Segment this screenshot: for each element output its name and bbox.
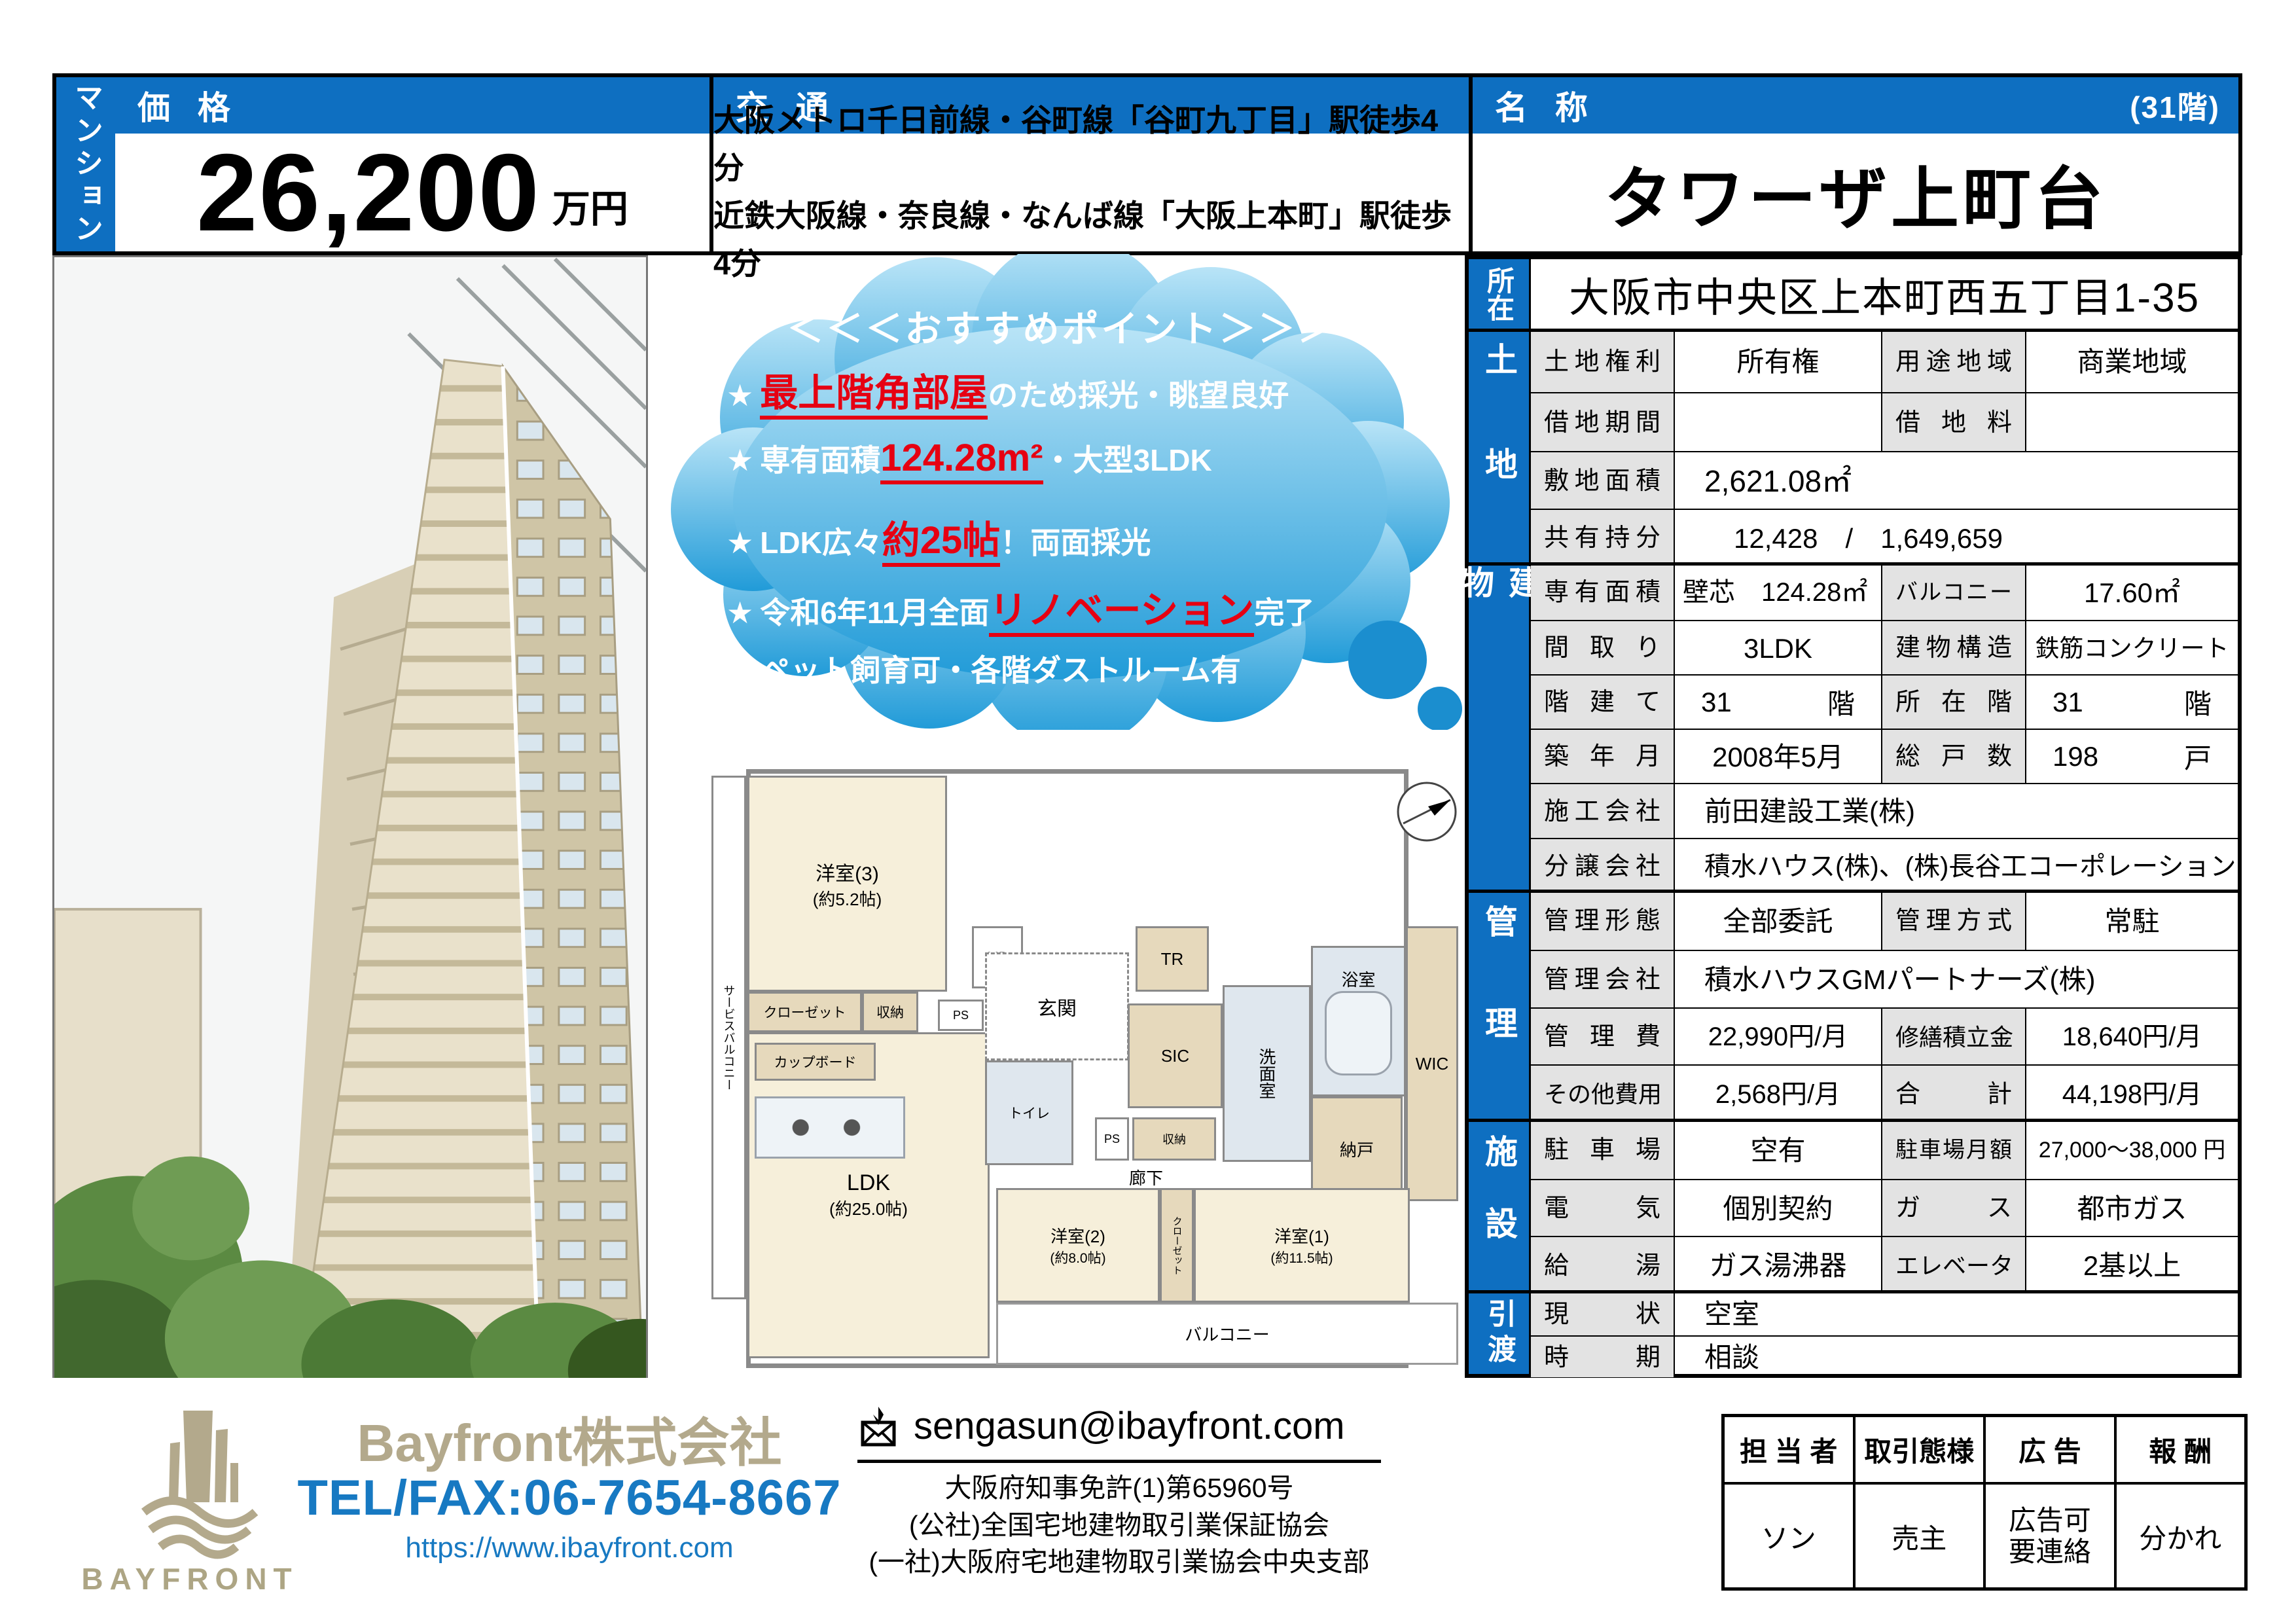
table-row: 間取り 3LDK 建物構造 鉄筋コンクリート	[1531, 620, 2238, 674]
recommend-point-1: ★最上階角部屋のため採光・眺望良好	[726, 362, 1401, 417]
building-tab: 建物	[1469, 566, 1531, 890]
table-row: 施工会社 前田建設工業(株)	[1531, 783, 2238, 838]
row-value: 198戸	[2026, 730, 2238, 783]
row-label: 間取り	[1531, 621, 1675, 674]
property-info-table: 所在 大阪市中央区上本町西五丁目1-35 土地 土地権利 所有権 用途地域 商業…	[1465, 255, 2242, 1378]
bathroom: 浴室	[1311, 946, 1406, 1096]
bayfront-logo-icon	[85, 1404, 301, 1561]
toilet: トイレ	[985, 1060, 1073, 1165]
recommend-point-4: ★令和6年11月全面リノベーション完了	[726, 579, 1401, 634]
table-row: その他費用 2,568円/月 合計 44,198円/月	[1531, 1064, 2238, 1122]
row-label: 電気	[1531, 1180, 1675, 1236]
row-value: 12,428 / 1,649,659	[1675, 510, 2238, 566]
table-row: 分譲会社 積水ハウス(株)、(株)長谷工コーポレーション	[1531, 838, 2238, 893]
recommend-title: ＜＜＜おすすめポイント＞＞＞	[655, 300, 1469, 353]
section-facility: 施設 駐車場 空有 駐車場月額 27,000～38,000 円 電気 個別契約 …	[1469, 1119, 2238, 1290]
section-location: 所在 大阪市中央区上本町西五丁目1-35	[1469, 259, 2238, 329]
row-label: 土地権利	[1531, 332, 1675, 392]
land-tab: 土地	[1469, 332, 1531, 562]
shoes-in-closet: SIC	[1128, 1003, 1223, 1108]
room1: 洋室(1) (約11.5帖)	[1194, 1188, 1410, 1303]
storage-2: 収納	[1132, 1117, 1216, 1161]
recommend-point-5: ★ペット飼育可・各階ダストルーム有	[726, 647, 1401, 690]
name-cell: タワーザ上町台	[1469, 134, 2238, 251]
star-icon: ★	[726, 653, 753, 687]
row-value: 相談	[1675, 1337, 2238, 1377]
name-header: 名 称 (31階)	[1469, 77, 2238, 134]
row-value: 壁芯 124.28㎡	[1675, 566, 1882, 620]
row-label: 施工会社	[1531, 784, 1675, 838]
row-label: 共有持分	[1531, 510, 1675, 566]
row-label: 用途地域	[1882, 332, 2026, 392]
row-label: 借地期間	[1531, 393, 1675, 451]
row-value: 商業地域	[2026, 332, 2238, 392]
license-line-1: 大阪府知事免許(1)第65960号	[825, 1470, 1414, 1507]
price-unit: 万円	[552, 178, 628, 233]
recommend-point-2: ★専有面積124.28m²・大型3LDK	[726, 436, 1401, 480]
row-label: ガス	[1882, 1180, 2026, 1236]
row-label: その他費用	[1531, 1066, 1675, 1122]
pipe-space: PS	[938, 1000, 984, 1031]
section-handover: 引渡 現状 空室 時期 相談	[1469, 1290, 2238, 1374]
access-cell: 大阪メトロ千日前線・谷町線「谷町九丁目」駅徒歩4分 近鉄大阪線・奈良線・なんば線…	[709, 134, 1469, 251]
agent-header-cell: 広 告	[1983, 1417, 2114, 1482]
balcony: バルコニー	[996, 1303, 1458, 1365]
row-value: 27,000～38,000 円	[2026, 1122, 2238, 1179]
section-management: 管理 管理形態 全部委託 管理方式 常駐 管理会社 積水ハウスGMパートナーズ(…	[1469, 890, 2238, 1119]
pipe-space-2: PS	[1095, 1117, 1129, 1161]
price-value: 26,200	[196, 130, 541, 256]
storage-room: 納戸	[1311, 1096, 1403, 1201]
agent-advertising: 広告可 要連絡	[1983, 1485, 2114, 1588]
row-value: 31階	[2026, 676, 2238, 729]
mail-icon	[857, 1405, 899, 1447]
row-value: 2,568円/月	[1675, 1066, 1882, 1122]
agent-header-cell: 報 酬	[2114, 1417, 2245, 1482]
agent-fee: 分かれ	[2114, 1485, 2245, 1588]
table-row: 現状 空室	[1531, 1293, 2238, 1335]
row-value: 44,198円/月	[2026, 1066, 2238, 1122]
cupboard: カップボード	[755, 1043, 876, 1081]
row-value: 2008年5月	[1675, 730, 1882, 783]
row-value: 2,621.08㎡	[1675, 452, 2238, 509]
row-value: 鉄筋コンクリート	[2026, 621, 2238, 674]
storage: 収納	[862, 992, 918, 1032]
row-value: 常駐	[2026, 893, 2238, 950]
washroom: 洗面室	[1223, 985, 1311, 1162]
price-cell: 26,200 万円	[115, 134, 709, 251]
section-land: 土地 土地権利 所有権 用途地域 商業地域 借地期間 借地料 敷地面積 2,62…	[1469, 329, 2238, 562]
row-label: エレベータ	[1882, 1237, 2026, 1293]
row-value: 個別契約	[1675, 1180, 1882, 1236]
row-label: 合計	[1882, 1066, 2026, 1122]
footer: BAYFRONT Bayfront株式会社 TEL/FAX:06-7654-86…	[0, 1378, 2296, 1624]
email-address: sengasun@ibayfront.com	[914, 1404, 1345, 1448]
walk-in-closet: WIC	[1406, 926, 1458, 1201]
access-line-1: 大阪メトロ千日前線・谷町線「谷町九丁目」駅徒歩4分	[713, 97, 1469, 192]
row-label: 修繕積立金	[1882, 1009, 2026, 1064]
company-url: https://www.ibayfront.com	[288, 1532, 851, 1564]
row-value: 空有	[1675, 1122, 1882, 1179]
agent-staff: ソン	[1725, 1485, 1853, 1588]
facility-tab: 施設	[1469, 1122, 1531, 1290]
floor-note: (31階)	[2130, 84, 2220, 127]
table-row: 管理形態 全部委託 管理方式 常駐	[1531, 893, 2238, 950]
price-header: 価 格	[115, 77, 709, 134]
recommend-point-3: ★LDK広々約25帖！両面採光	[726, 509, 1401, 564]
location-tab: 所在	[1469, 259, 1531, 329]
row-label: 管理方式	[1882, 893, 2026, 950]
ldk: LDK (約25.0帖)	[747, 1032, 990, 1358]
table-row: 管理会社 積水ハウスGMパートナーズ(株)	[1531, 950, 2238, 1007]
recommend-cloud: ＜＜＜おすすめポイント＞＞＞ ★最上階角部屋のため採光・眺望良好 ★専有面積12…	[655, 254, 1469, 732]
license-line-3: (一社)大阪府宅地建物取引業協会中央支部	[825, 1543, 1414, 1581]
row-value: ガス湯沸器	[1675, 1237, 1882, 1293]
row-label: 管理形態	[1531, 893, 1675, 950]
row-label: 現状	[1531, 1293, 1675, 1335]
row-label: 所在階	[1882, 676, 2026, 729]
compass-icon	[1394, 779, 1460, 844]
real-estate-flyer: マンション 価 格 26,200 万円 交 通 大阪メトロ千日前線・谷町線「谷町…	[0, 0, 2296, 1624]
row-value: 積水ハウス(株)、(株)長谷工コーポレーション	[1675, 839, 2238, 893]
section-building: 建物 専有面積 壁芯 124.28㎡ バルコニー 17.60㎡ 間取り 3LDK…	[1469, 562, 2238, 890]
row-value	[1675, 393, 1882, 451]
star-icon: ★	[726, 596, 753, 630]
row-value: 3LDK	[1675, 621, 1882, 674]
table-row: 給湯 ガス湯沸器 エレベータ 2基以上	[1531, 1236, 2238, 1293]
agent-header-cell: 担 当 者	[1725, 1417, 1853, 1482]
kitchen-counter	[755, 1096, 905, 1159]
table-row: 築年月 2008年5月 総戸数 198戸	[1531, 729, 2238, 783]
company-name: Bayfront株式会社	[288, 1401, 851, 1477]
row-label: 築年月	[1531, 730, 1675, 783]
tel-fax: TEL/FAX:06-7654-8667	[288, 1470, 851, 1526]
row-label: 管理会社	[1531, 951, 1675, 1007]
row-value	[2026, 393, 2238, 451]
row-label: 建物構造	[1882, 621, 2026, 674]
row-label: 専有面積	[1531, 566, 1675, 620]
row-label: 階建て	[1531, 676, 1675, 729]
agent-table: 担 当 者 取引態様 広 告 報 酬 ソン 売主 広告可 要連絡 分かれ	[1721, 1414, 2248, 1591]
row-label: 駐車場月額	[1882, 1122, 2026, 1179]
row-label: 管理費	[1531, 1009, 1675, 1064]
row-value: 全部委託	[1675, 893, 1882, 950]
bathtub-icon	[1325, 991, 1392, 1075]
license-line-2: (公社)全国宅地建物取引業保証協会	[825, 1507, 1414, 1544]
room3: 洋室(3) (約5.2帖)	[747, 776, 947, 992]
closet-strip: クローゼット	[1160, 1188, 1194, 1303]
table-row: 電気 個別契約 ガス 都市ガス	[1531, 1179, 2238, 1236]
row-value: 前田建設工業(株)	[1675, 784, 2238, 838]
license-block: 大阪府知事免許(1)第65960号 (公社)全国宅地建物取引業保証協会 (一社)…	[825, 1470, 1414, 1581]
table-row: 土地権利 所有権 用途地域 商業地域	[1531, 332, 2238, 392]
table-row: 敷地面積 2,621.08㎡	[1531, 451, 2238, 509]
table-row: 階建て 31階 所在階 31階	[1531, 674, 2238, 729]
row-label: 給湯	[1531, 1237, 1675, 1293]
row-label: 時期	[1531, 1337, 1675, 1377]
property-type-tab: マンション	[56, 77, 115, 251]
building-name: タワーザ上町台	[1604, 143, 2107, 242]
row-label: 借地料	[1882, 393, 2026, 451]
row-label: 総戸数	[1882, 730, 2026, 783]
row-value: 都市ガス	[2026, 1180, 2238, 1236]
row-value: 空室	[1675, 1293, 2238, 1335]
name-header-label: 名 称	[1495, 82, 1597, 129]
closet: クローゼット	[747, 992, 862, 1032]
row-value: 22,990円/月	[1675, 1009, 1882, 1064]
row-value: 17.60㎡	[2026, 566, 2238, 620]
floor-plan: サービスバルコニー 洋室(3) (約5.2帖) LDK (約25.0帖) クロー…	[710, 730, 1462, 1381]
row-value: 18,640円/月	[2026, 1009, 2238, 1064]
agent-header-cell: 取引態様	[1853, 1417, 1984, 1482]
email-row: sengasun@ibayfront.com	[857, 1404, 1381, 1463]
row-label: 敷地面積	[1531, 452, 1675, 509]
agent-table-values: ソン 売主 広告可 要連絡 分かれ	[1725, 1485, 2244, 1588]
hallway: 廊下	[1129, 1165, 1163, 1189]
star-icon: ★	[726, 443, 753, 477]
agent-table-header: 担 当 者 取引態様 広 告 報 酬	[1725, 1417, 2244, 1485]
table-row: 借地期間 借地料	[1531, 392, 2238, 451]
row-value: 積水ハウスGMパートナーズ(株)	[1675, 951, 2238, 1007]
management-tab: 管理	[1469, 893, 1531, 1119]
handover-tab: 引渡	[1469, 1293, 1531, 1374]
table-row: 共有持分 12,428 / 1,649,659	[1531, 509, 2238, 566]
table-row: 管理費 22,990円/月 修繕積立金 18,640円/月	[1531, 1007, 2238, 1064]
table-row: 専有面積 壁芯 124.28㎡ バルコニー 17.60㎡	[1531, 566, 2238, 620]
star-icon: ★	[726, 378, 753, 412]
top-band: マンション 価 格 26,200 万円 交 通 大阪メトロ千日前線・谷町線「谷町…	[52, 73, 2242, 255]
row-label: 駐車場	[1531, 1122, 1675, 1179]
table-row: 駐車場 空有 駐車場月額 27,000～38,000 円	[1531, 1122, 2238, 1179]
row-value: 2基以上	[2026, 1237, 2238, 1293]
address: 大阪市中央区上本町西五丁目1-35	[1531, 259, 2238, 329]
row-value: 31階	[1675, 676, 1882, 729]
logo-wordmark: BAYFRONT	[72, 1561, 308, 1597]
entrance: 玄関	[985, 952, 1129, 1060]
service-balcony: サービスバルコニー	[711, 776, 746, 1299]
row-value: 所有権	[1675, 332, 1882, 392]
room2: 洋室(2) (約8.0帖)	[996, 1188, 1160, 1303]
trunk-room: TR	[1136, 926, 1209, 992]
agent-transaction-type: 売主	[1853, 1485, 1984, 1588]
star-icon: ★	[726, 526, 753, 560]
building-photo	[52, 255, 648, 1381]
table-row: 時期 相談	[1531, 1335, 2238, 1377]
row-label: バルコニー	[1882, 566, 2026, 620]
row-label: 分譲会社	[1531, 839, 1675, 893]
